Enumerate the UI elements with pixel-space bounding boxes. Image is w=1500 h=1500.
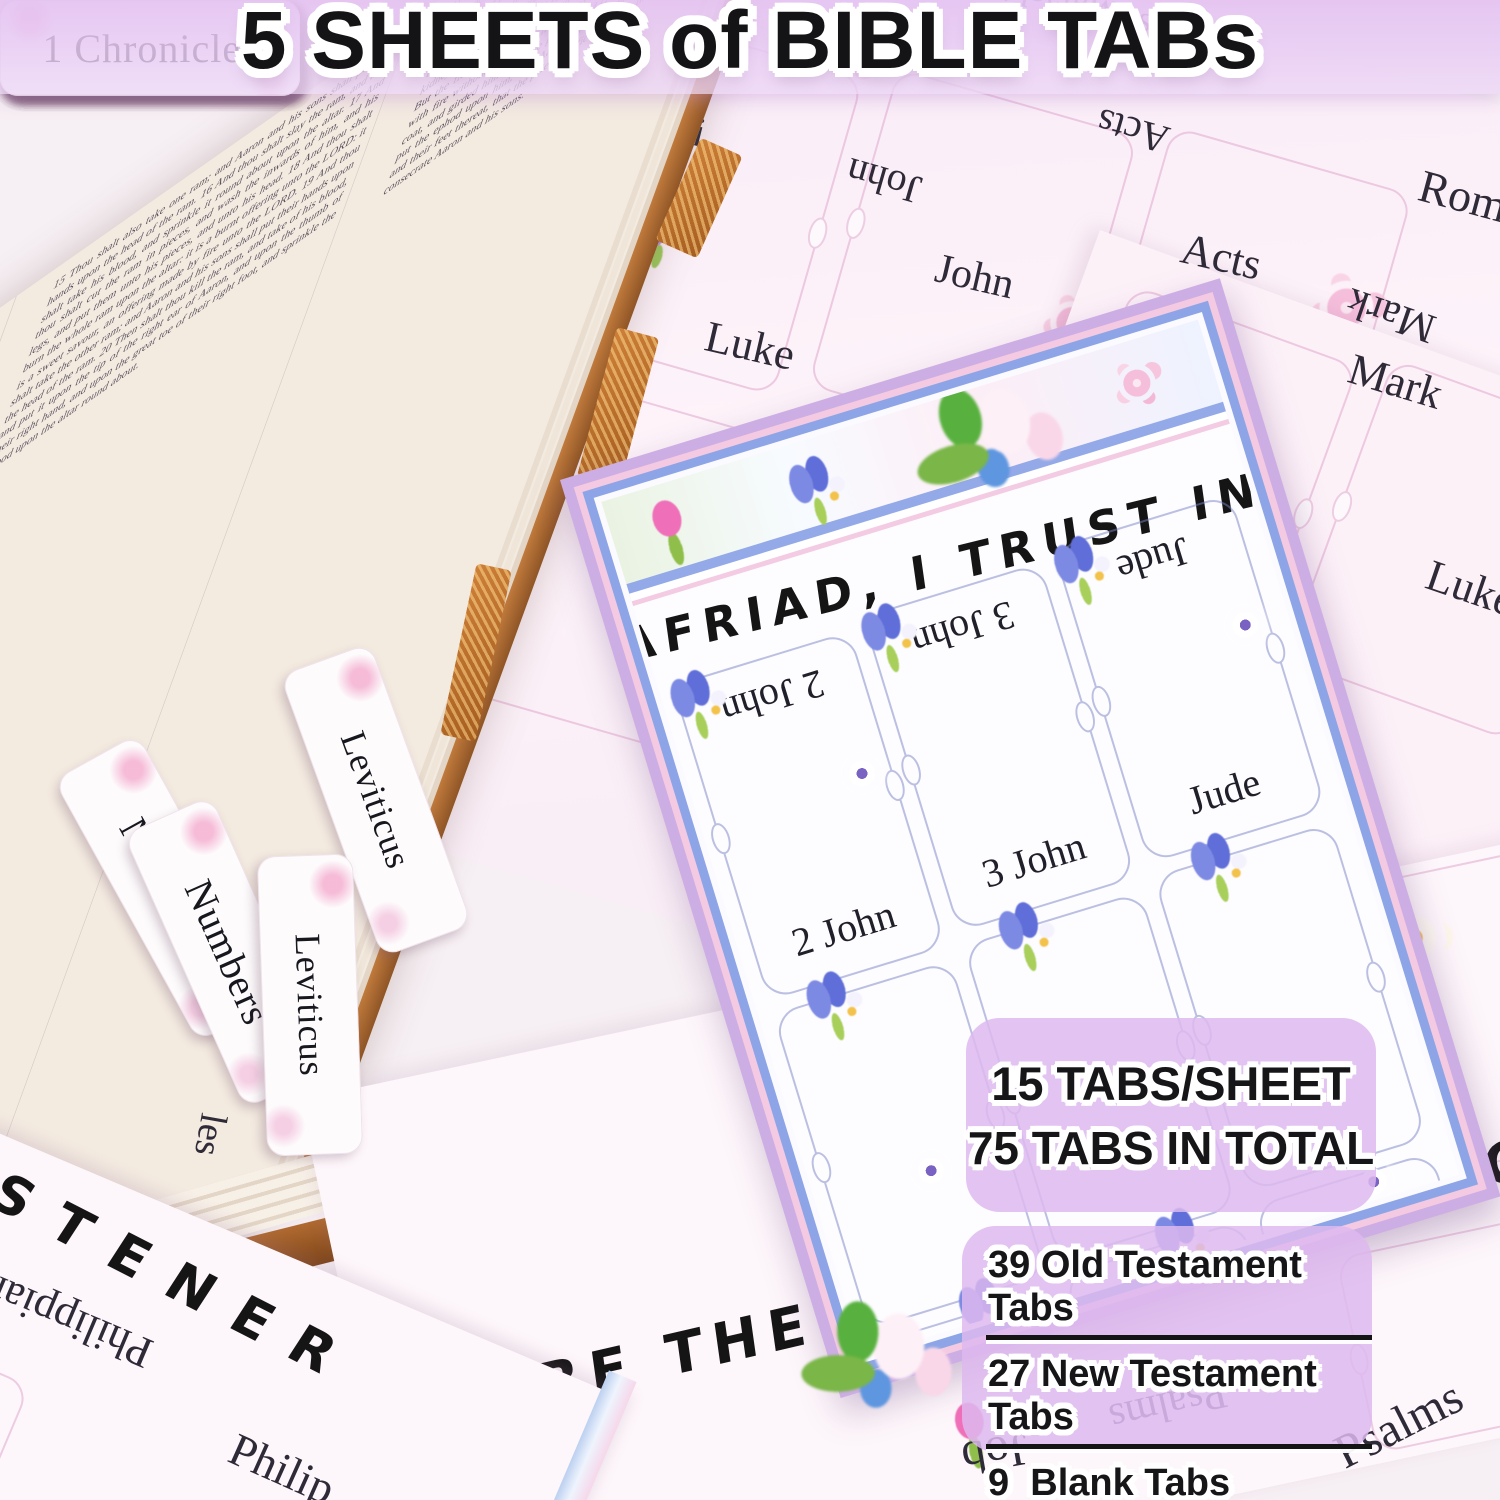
stats-box-breakdown: 39 Old Testament Tabs 27 New Testament T… bbox=[962, 1226, 1372, 1452]
title-band: 5 SHEETS of BIBLE TABs bbox=[0, 0, 1500, 94]
stat-old-testament: 39 Old Testament Tabs bbox=[986, 1244, 1372, 1340]
bible-tab-leviticus-2: Leviticus bbox=[257, 853, 363, 1156]
tab-label-mirrored: Jude bbox=[1112, 527, 1196, 593]
tab-label-mirrored: 2 John bbox=[716, 660, 831, 736]
pink-tulip-flower bbox=[633, 488, 708, 573]
product-photo: of the children of Israel in his heart, … bbox=[0, 0, 1500, 1500]
stats-box-counts: 15 TABS/SHEET 75 TABS IN TOTAL bbox=[966, 1018, 1376, 1212]
stat-tabs-per-sheet: 15 TABS/SHEET bbox=[991, 1056, 1351, 1111]
blue-crocus-flower bbox=[766, 438, 862, 544]
tab-label-mirrored: 3 John bbox=[906, 591, 1021, 667]
tab-label: 2 John bbox=[786, 890, 901, 966]
stat-total-tabs: 75 TABS IN TOTAL bbox=[968, 1121, 1374, 1175]
stat-blank-tabs: 9 Blank Tabs bbox=[986, 1462, 1238, 1500]
page-title: 5 SHEETS of BIBLE TABs bbox=[0, 0, 1500, 86]
tab-label: 3 John bbox=[976, 822, 1091, 898]
stat-new-testament: 27 New Testament Tabs bbox=[986, 1353, 1372, 1449]
cherry-blossom-flower bbox=[1113, 360, 1160, 407]
tab-label: Jude bbox=[1182, 758, 1266, 824]
tab-text-fragment: les bbox=[185, 1110, 236, 1159]
lily-flower-cluster bbox=[884, 351, 1085, 525]
